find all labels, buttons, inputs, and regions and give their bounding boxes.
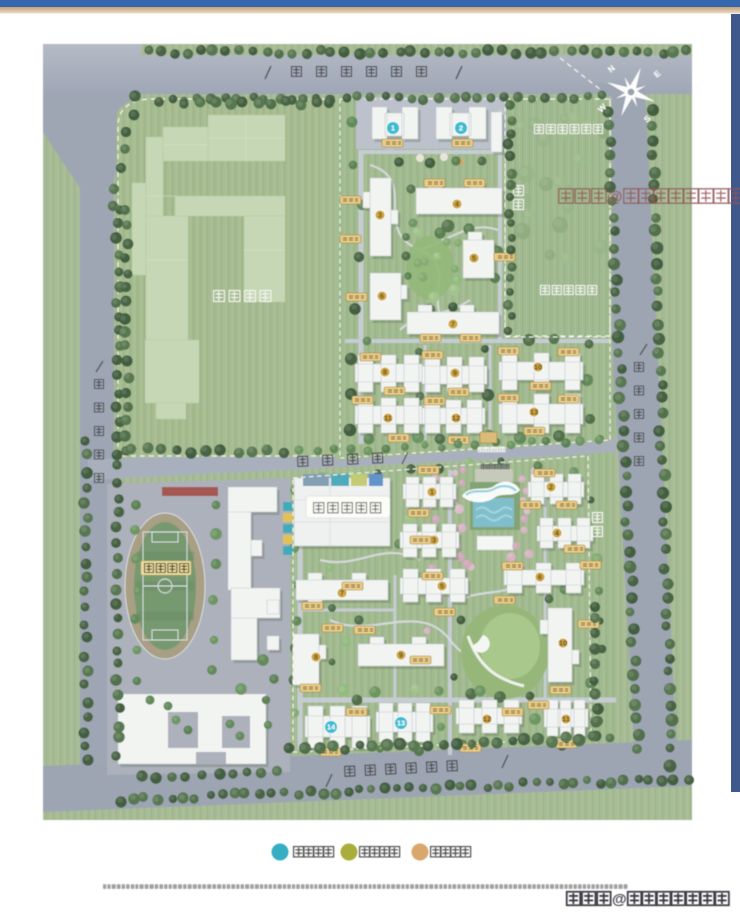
svg-text:@: @ <box>607 189 623 206</box>
svg-text:@: @ <box>612 891 627 908</box>
